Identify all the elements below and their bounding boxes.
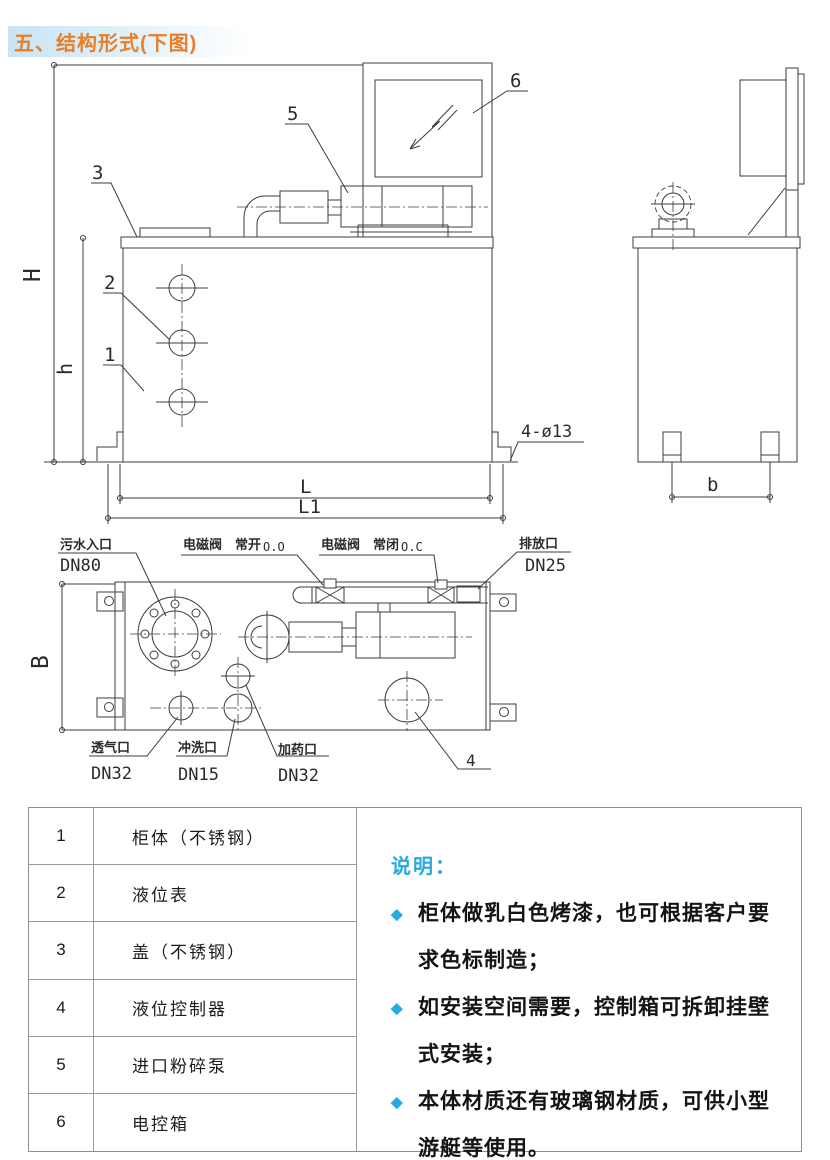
part-no: 3: [29, 922, 94, 979]
mounting-feet-front: [92, 432, 518, 462]
part-name: 电控箱: [94, 1094, 357, 1151]
part-name: 盖（不锈钢）: [94, 922, 357, 979]
dim-h-label: h: [53, 363, 77, 375]
notes-heading: 说明：: [391, 850, 801, 879]
part-no: 1: [29, 808, 94, 865]
level-controller: [378, 671, 443, 731]
note-item: ◆ 柜体做乳白色烤漆，也可根据客户要求色标制造；: [391, 890, 773, 984]
side-view: b: [633, 68, 804, 503]
diamond-bullet-icon: ◆: [391, 1078, 404, 1127]
svg-text:常开: 常开: [235, 537, 261, 552]
tank-body-side: [638, 248, 797, 462]
dim-b-label: b: [707, 474, 718, 496]
callout-4: 4: [466, 751, 476, 770]
part-no: 4: [29, 980, 94, 1037]
mounting-brackets-plan: [97, 592, 516, 721]
dim-L-label: L: [300, 476, 311, 498]
lightning-icon: [410, 105, 457, 149]
svg-text:O.C: O.C: [401, 540, 423, 554]
notes-panel: 说明： ◆ 柜体做乳白色烤漆，也可根据客户要求色标制造； ◆ 如安装空间需要，控…: [357, 808, 801, 1151]
svg-text:O.O: O.O: [263, 540, 285, 554]
inlet-dn-label: DN80: [60, 556, 101, 576]
part-name: 液位控制器: [94, 980, 357, 1037]
dim-H-label: H: [20, 268, 46, 282]
callout-1: 1: [104, 344, 115, 366]
catalog-page: 五、结构形式(下图) H h: [0, 0, 830, 1160]
flush-label: 冲洗口: [178, 740, 217, 755]
callout-5: 5: [287, 103, 298, 125]
structure-drawing: H h: [0, 60, 830, 795]
pump-assembly-plan: [238, 611, 472, 663]
note-item: ◆ 如安装空间需要，控制箱可拆卸挂壁式安装；: [391, 984, 773, 1078]
page-title: 五、结构形式(下图): [14, 27, 197, 56]
notes-list: ◆ 柜体做乳白色烤漆，也可根据客户要求色标制造； ◆ 如安装空间需要，控制箱可拆…: [391, 890, 773, 1160]
svg-text:常闭: 常闭: [373, 537, 399, 552]
control-box-side: [740, 68, 804, 237]
flush-dn-label: DN15: [178, 765, 219, 785]
part-name: 进口粉碎泵: [94, 1037, 357, 1094]
valve-closed-label: 电磁阀: [321, 537, 360, 552]
callout-3: 3: [92, 162, 103, 184]
drain-dn-label: DN25: [525, 556, 566, 576]
note-item: ◆ 本体材质还有玻璃钢材质，可供小型游艇等使用。: [391, 1078, 773, 1160]
plan-view: B: [28, 536, 571, 786]
dosing-label: 加药口: [277, 742, 317, 757]
dim-B-label: B: [28, 655, 54, 669]
level-gauges: [156, 264, 208, 428]
vent-label: 透气口: [91, 740, 130, 755]
inlet-label: 污水入口: [60, 537, 112, 552]
dosing-dn-label: DN32: [278, 766, 319, 786]
pipe-fitting-side: [651, 182, 695, 252]
part-no: 5: [29, 1037, 94, 1094]
front-view: H h: [20, 63, 584, 525]
valve-normally-closed-icon: [428, 580, 454, 603]
part-no: 6: [29, 1094, 94, 1151]
diamond-bullet-icon: ◆: [391, 984, 404, 1033]
diamond-bullet-icon: ◆: [391, 890, 404, 939]
part-no: 2: [29, 865, 94, 922]
part-name: 柜体（不锈钢）: [94, 808, 357, 865]
callout-2: 2: [104, 272, 115, 294]
part-name: 液位表: [94, 865, 357, 922]
callout-6: 6: [510, 70, 521, 92]
bolt-holes-label: 4-ø13: [521, 422, 572, 442]
section-title-strip: 五、结构形式(下图): [8, 26, 248, 57]
valve-normally-open-icon: [316, 579, 344, 603]
drain-label: 排放口: [519, 536, 558, 551]
dim-L1-label: L1: [298, 496, 321, 518]
valve-open-label: 电磁阀: [183, 537, 222, 552]
tank-lid: [121, 237, 493, 248]
lid-plate: [140, 228, 210, 237]
vent-dn-label: DN32: [91, 764, 132, 784]
inlet-flange: [130, 589, 221, 679]
parts-table: 1 柜体（不锈钢） 2 液位表 3 盖（不锈钢） 4 液位控制器 5 进口粉碎泵…: [28, 807, 802, 1152]
